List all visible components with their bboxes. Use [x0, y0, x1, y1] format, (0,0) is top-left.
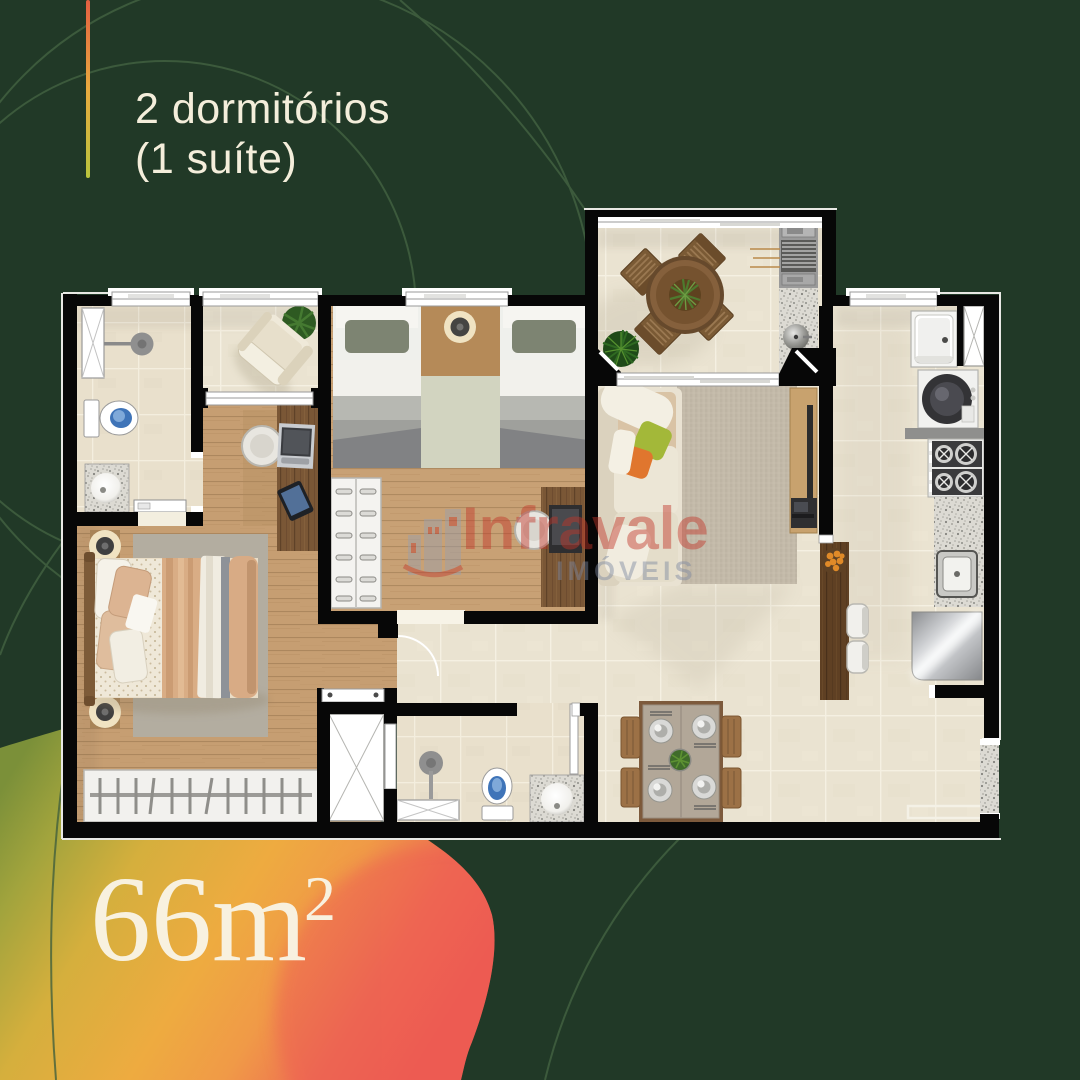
svg-text:2 dormitórios: 2 dormitórios [135, 85, 390, 133]
svg-text:66m: 66m [90, 852, 307, 987]
svg-text:2: 2 [304, 863, 336, 934]
svg-text:IMÓVEIS: IMÓVEIS [556, 555, 697, 586]
svg-text:Infravale: Infravale [462, 495, 709, 562]
svg-text:(1 suíte): (1 suíte) [135, 135, 297, 183]
